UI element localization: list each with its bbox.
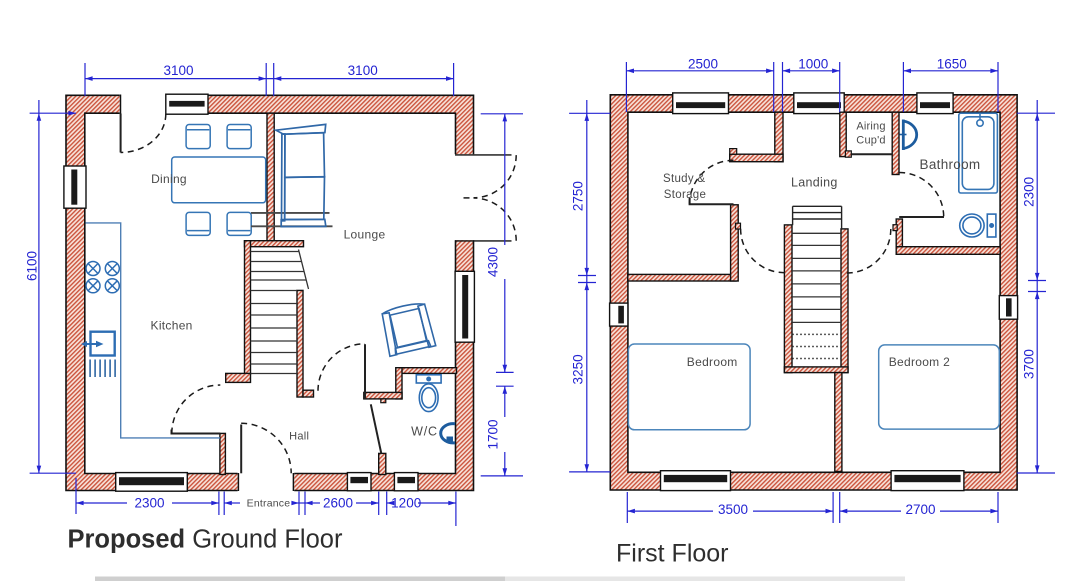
svg-text:4300: 4300	[485, 247, 500, 277]
svg-text:3700: 3700	[1022, 349, 1037, 379]
svg-text:6100: 6100	[25, 251, 40, 281]
svg-text:1000: 1000	[798, 57, 828, 72]
svg-text:2500: 2500	[688, 57, 718, 72]
svg-text:Landing: Landing	[791, 176, 838, 190]
svg-text:Airing: Airing	[856, 121, 885, 133]
svg-text:Bathroom: Bathroom	[920, 157, 981, 172]
svg-text:Kitchen: Kitchen	[151, 319, 193, 333]
svg-text:3100: 3100	[163, 63, 193, 78]
svg-text:1650: 1650	[937, 57, 967, 72]
svg-text:Entrance: Entrance	[247, 498, 291, 510]
svg-text:First Floor: First Floor	[616, 540, 729, 568]
svg-text:Bedroom: Bedroom	[687, 355, 738, 369]
svg-text:2300: 2300	[1022, 177, 1037, 207]
svg-text:1200: 1200	[391, 496, 421, 511]
svg-text:Bedroom 2: Bedroom 2	[889, 355, 950, 369]
svg-text:Proposed Ground Floor: Proposed Ground Floor	[68, 526, 343, 554]
svg-text:Storage: Storage	[664, 189, 706, 201]
svg-text:Dining: Dining	[151, 172, 187, 186]
svg-text:Lounge: Lounge	[344, 228, 386, 242]
svg-text:2700: 2700	[905, 502, 935, 517]
svg-text:3500: 3500	[718, 502, 748, 517]
svg-text:W/C: W/C	[411, 425, 438, 439]
svg-text:2750: 2750	[571, 181, 586, 211]
svg-text:3250: 3250	[571, 354, 586, 384]
svg-text:Study &: Study &	[663, 173, 705, 185]
svg-text:2300: 2300	[134, 496, 164, 511]
svg-text:3100: 3100	[348, 63, 378, 78]
svg-text:2600: 2600	[323, 496, 353, 511]
svg-text:Cup'd: Cup'd	[856, 135, 885, 147]
svg-text:1700: 1700	[485, 419, 500, 449]
svg-text:Hall: Hall	[289, 431, 309, 443]
